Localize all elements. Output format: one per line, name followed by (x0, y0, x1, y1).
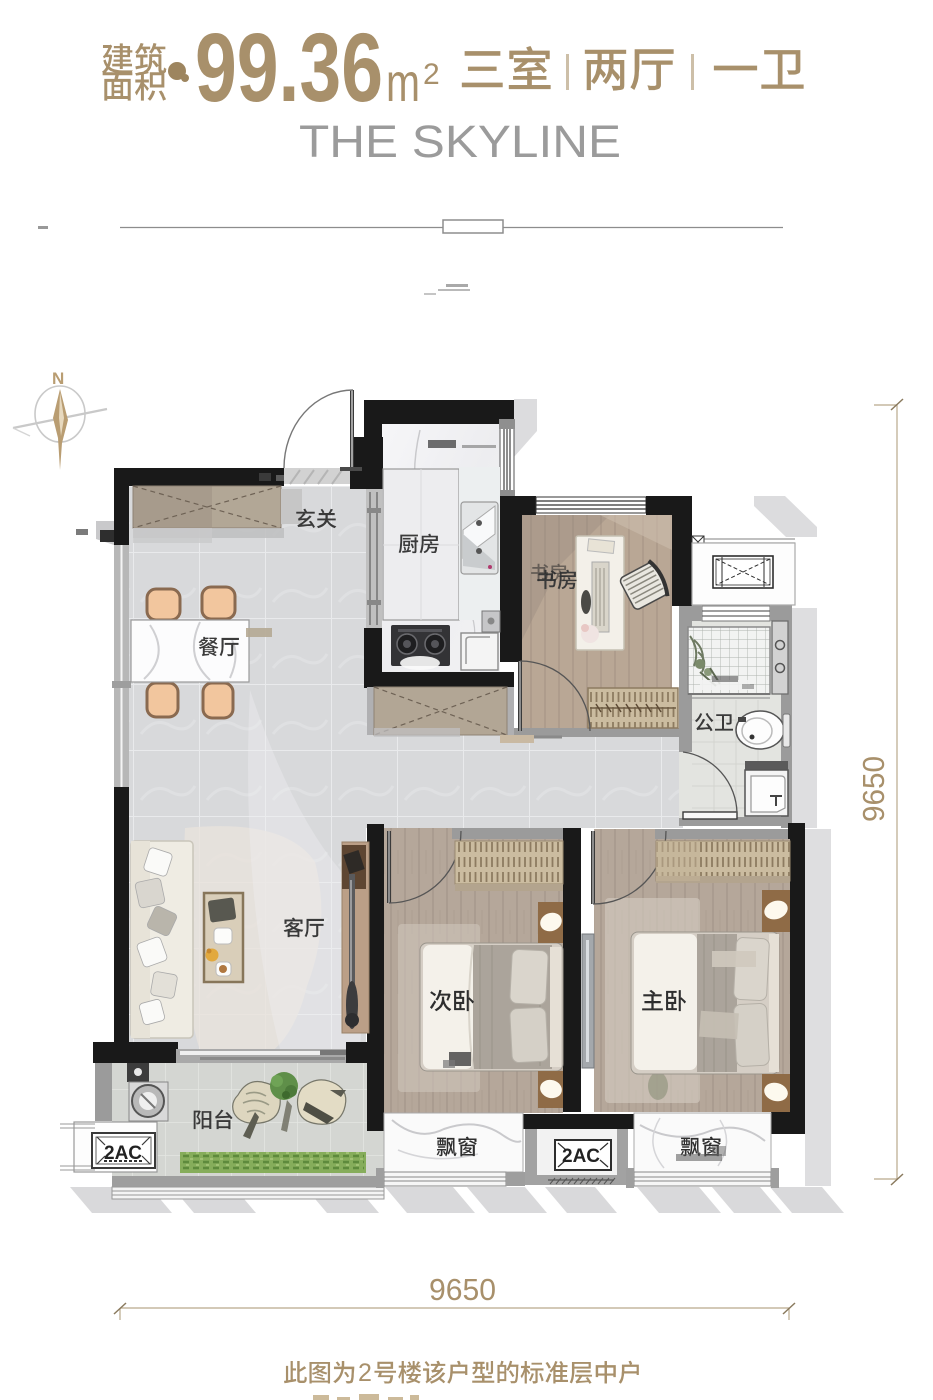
svg-text:m: m (386, 53, 420, 113)
svg-text:2: 2 (423, 58, 440, 91)
svg-text:9650: 9650 (429, 1272, 496, 1307)
svg-text:THE SKYLINE: THE SKYLINE (299, 116, 621, 167)
svg-text:2AC: 2AC (562, 1146, 600, 1167)
svg-text:9650: 9650 (856, 756, 891, 822)
svg-text:N: N (52, 369, 64, 388)
svg-text:2: 2 (358, 1359, 372, 1387)
svg-text:99.36: 99.36 (195, 13, 383, 122)
